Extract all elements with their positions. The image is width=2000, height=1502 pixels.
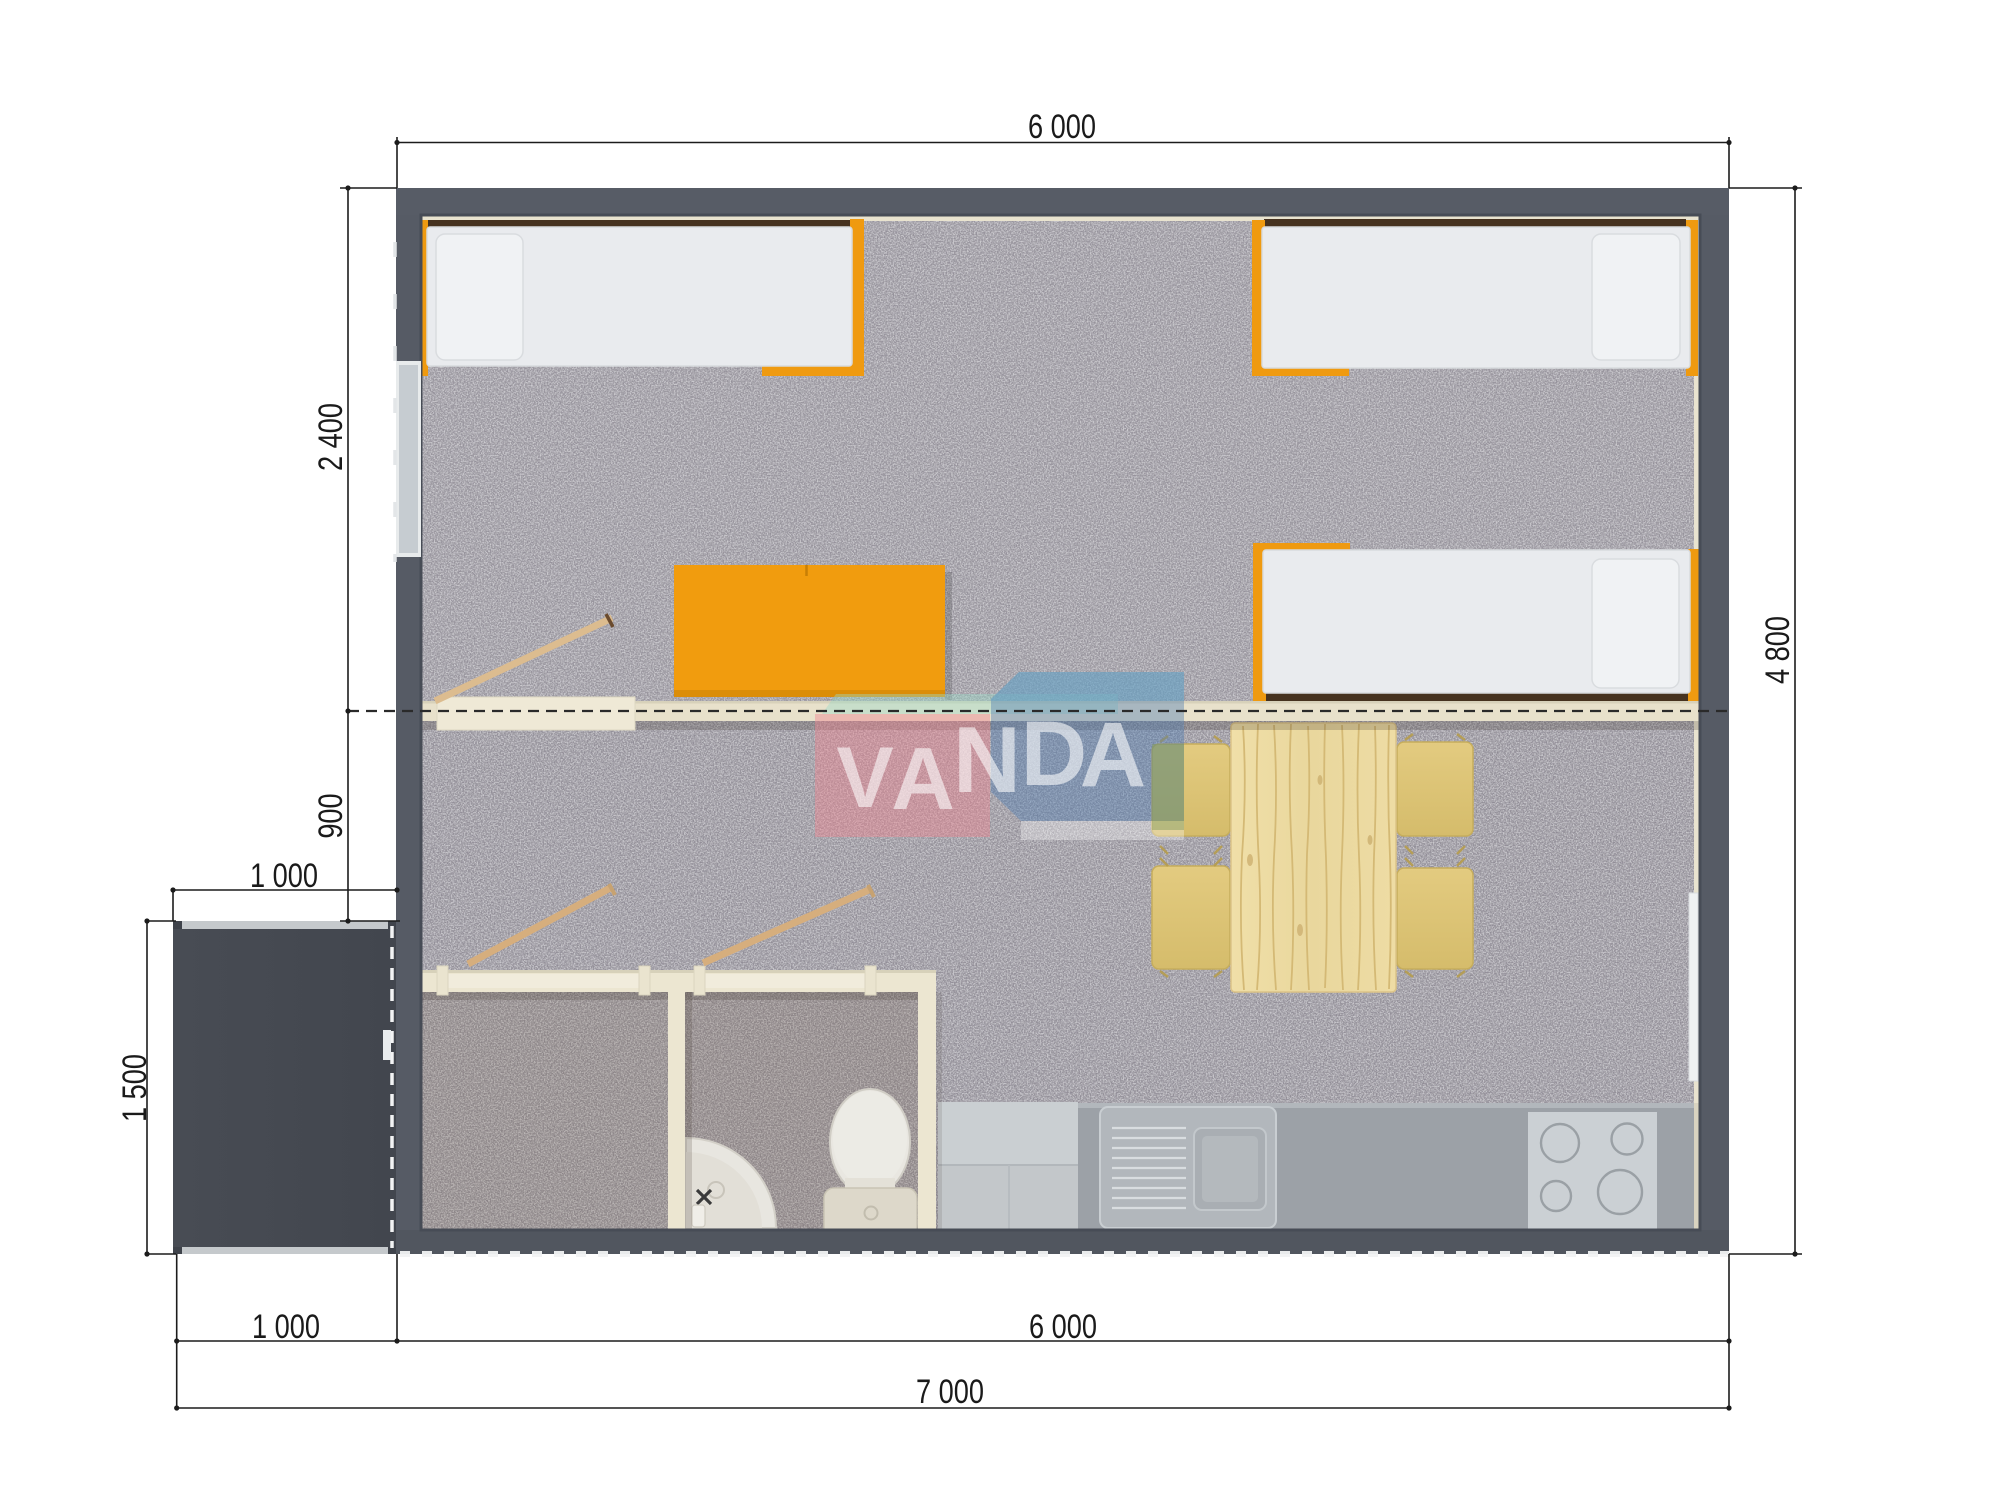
svg-text:2 400: 2 400	[311, 403, 350, 471]
svg-text:4 800: 4 800	[1758, 616, 1797, 684]
svg-text:1 000: 1 000	[250, 856, 318, 895]
svg-text:D: D	[1021, 703, 1087, 805]
svg-text:6 000: 6 000	[1028, 107, 1096, 146]
svg-text:1 500: 1 500	[115, 1054, 154, 1122]
svg-text:N: N	[953, 707, 1021, 812]
svg-text:7 000: 7 000	[916, 1372, 984, 1411]
svg-text:A: A	[891, 729, 955, 828]
svg-text:1 000: 1 000	[252, 1307, 320, 1346]
svg-text:6 000: 6 000	[1029, 1307, 1097, 1346]
svg-text:V: V	[836, 730, 893, 826]
svg-text:900: 900	[311, 793, 350, 838]
svg-text:A: A	[1080, 704, 1146, 806]
